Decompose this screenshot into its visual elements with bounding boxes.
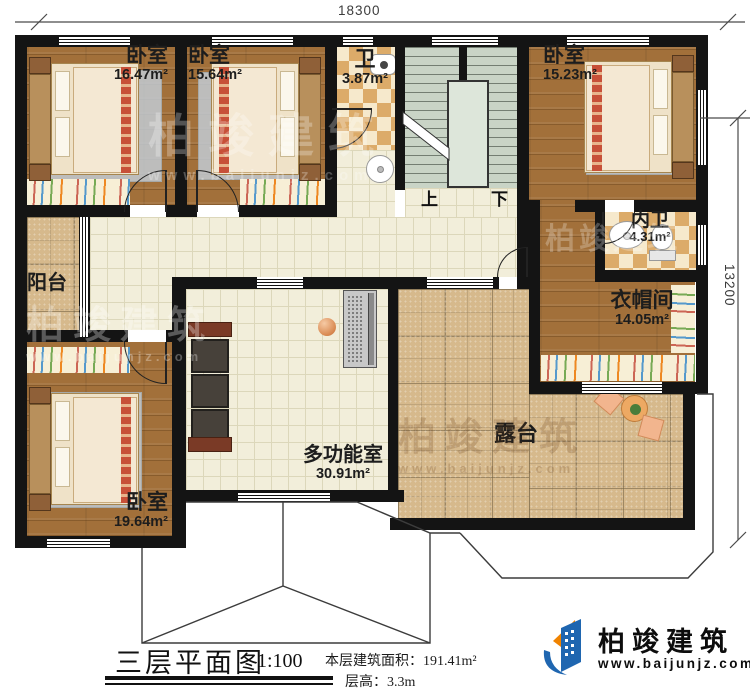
- bed-part: [299, 164, 321, 181]
- window: [47, 538, 110, 548]
- wall: [303, 277, 427, 289]
- room-label-cloakroom: 衣帽间 14.05m²: [596, 290, 688, 328]
- dimension-width: 18300: [338, 3, 381, 18]
- floor-height-label: 层高：: [345, 675, 387, 690]
- logo-url: www.baijunjz.com: [598, 656, 750, 671]
- bed-part: [55, 401, 70, 441]
- floor-height-value: 3.3m: [387, 675, 415, 690]
- room-label-bedroom-mid: 卧室 15.64m²: [188, 45, 270, 83]
- room-area: 3.87m²: [330, 72, 400, 88]
- wall: [166, 205, 197, 217]
- bed-part: [55, 117, 70, 157]
- room-area: 14.05m²: [596, 313, 688, 329]
- room-name: 衣帽间: [596, 290, 688, 313]
- wall: [172, 277, 186, 548]
- bed-part: [121, 397, 131, 503]
- logo-mark-icon: [541, 614, 593, 676]
- bed-part: [672, 72, 694, 162]
- bed-part: [29, 387, 51, 404]
- wall: [175, 47, 187, 205]
- stairs-up-label: 上: [421, 185, 438, 210]
- room-area: 15.23m²: [543, 68, 639, 84]
- floor-area-info: 本层建筑面积：191.41m²: [325, 650, 477, 670]
- wall: [15, 205, 79, 217]
- company-logo: 柏竣建筑 www.baijunjz.com: [541, 614, 746, 680]
- bed-part: [299, 74, 321, 164]
- logo-name: 柏竣建筑: [598, 620, 734, 659]
- room-area: 16.47m²: [86, 68, 168, 84]
- wall: [390, 518, 690, 530]
- bed-part: [280, 117, 295, 157]
- sofa-end-table: [188, 322, 232, 337]
- wall: [493, 277, 499, 289]
- drawing-title: 三层平面图: [115, 641, 265, 680]
- bed-part: [55, 447, 70, 487]
- window: [79, 217, 90, 337]
- wall: [595, 270, 708, 282]
- window: [697, 225, 707, 265]
- room-label-bedroom-tl: 卧室 16.47m²: [86, 45, 168, 83]
- wall: [186, 277, 257, 289]
- room-area: 19.64m²: [84, 515, 168, 531]
- floor-plan-sheet: 卧室 16.47m² 卧室 15.64m² 卫 3.87m² 卧室 15.23m…: [0, 0, 750, 690]
- tv-speaker-grille: [347, 295, 363, 363]
- room-name: 卧室: [188, 45, 270, 68]
- door-leaf: [332, 108, 372, 110]
- wardrobe-strip: [27, 179, 130, 205]
- bed-part: [299, 57, 321, 74]
- door-leaf: [165, 170, 167, 212]
- wall: [696, 35, 708, 394]
- room-label-bath: 卫 3.87m²: [330, 49, 400, 87]
- sofa: [188, 322, 232, 452]
- ball: [318, 318, 336, 336]
- room-area: 30.91m²: [283, 467, 403, 483]
- floor-terrace: [398, 289, 529, 518]
- room-label-multi-room: 多功能室 30.91m²: [283, 445, 403, 482]
- stairs-down-label: 下: [491, 185, 508, 210]
- room-name: 多功能室: [283, 445, 403, 467]
- room-area: 4.31m²: [608, 230, 692, 243]
- door-leaf: [526, 247, 528, 277]
- wardrobe-strip: [240, 179, 326, 205]
- room-name: 内卫: [608, 211, 692, 230]
- door-leaf: [196, 170, 198, 212]
- window: [257, 279, 303, 289]
- bed-part: [29, 404, 51, 494]
- window: [697, 90, 707, 165]
- window: [343, 36, 373, 46]
- bed-part: [672, 162, 694, 179]
- floor-corridor-lobby: [90, 217, 172, 330]
- sofa-cushion: [191, 339, 229, 373]
- floor-area-value: 191.41m²: [423, 654, 477, 669]
- window: [238, 492, 330, 502]
- tv-screen: [368, 293, 374, 365]
- wall: [166, 330, 172, 342]
- floor-passage: [540, 200, 595, 282]
- title-underline-thick: [105, 676, 333, 680]
- room-name: 卧室: [86, 45, 168, 68]
- wall: [683, 394, 695, 530]
- window: [582, 384, 662, 394]
- room-area: 15.64m²: [188, 68, 270, 84]
- wall: [239, 205, 325, 217]
- room-label-balcony: 阳台: [27, 273, 67, 295]
- wall: [529, 382, 582, 394]
- title-underline-thin: [105, 683, 333, 685]
- room-name: 卫: [330, 49, 400, 72]
- room-label-terrace: 露台: [494, 422, 538, 446]
- bed-part: [29, 164, 51, 181]
- window: [432, 36, 498, 46]
- wall: [15, 330, 128, 342]
- room-label-bedroom-bl: 卧室 19.64m²: [84, 492, 168, 530]
- sofa-cushion: [191, 374, 229, 408]
- wall: [15, 35, 27, 548]
- room-name: 卧室: [84, 492, 168, 515]
- bed-part: [29, 74, 51, 164]
- room-name: 卧室: [543, 45, 639, 68]
- wall: [662, 382, 708, 394]
- bed-part: [672, 55, 694, 72]
- wall: [529, 200, 540, 394]
- room-label-bedroom-tr: 卧室 15.23m²: [543, 45, 639, 83]
- wall: [459, 47, 467, 80]
- bed-part: [653, 115, 668, 155]
- room-label-inner-bath: 内卫 4.31m²: [608, 211, 692, 243]
- tv-cabinet: [343, 290, 377, 368]
- bed-part: [29, 57, 51, 74]
- bed-part: [653, 69, 668, 109]
- window: [427, 279, 493, 289]
- dimension-height: 13200: [722, 264, 737, 307]
- stair-shaft: [447, 80, 489, 188]
- floor-height-info: 层高：3.3m: [345, 671, 415, 690]
- bed-part: [55, 71, 70, 111]
- bed-part: [29, 494, 51, 511]
- drawing-scale: 1:100: [257, 650, 303, 673]
- floor-area-label: 本层建筑面积：: [325, 654, 423, 669]
- sofa-end-table: [188, 437, 232, 452]
- floor-plan: 卧室 16.47m² 卧室 15.64m² 卫 3.87m² 卧室 15.23m…: [0, 0, 750, 690]
- washbasin: [366, 155, 394, 183]
- closet-strip: [541, 355, 695, 381]
- bed-part: [280, 71, 295, 111]
- door-leaf: [165, 342, 167, 384]
- wardrobe-strip: [27, 347, 130, 373]
- door-leaf: [602, 212, 604, 244]
